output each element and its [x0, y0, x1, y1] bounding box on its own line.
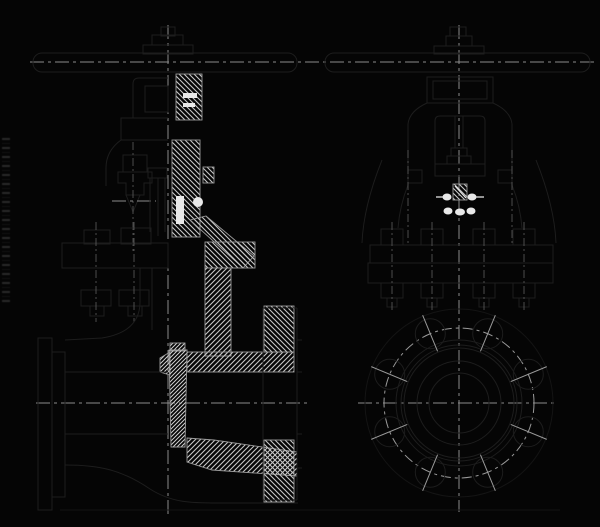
packing-highlight — [176, 196, 184, 224]
yoke-sleeve-inner — [145, 86, 168, 112]
gland-bolt-flange — [118, 172, 152, 195]
front-elevation-view — [325, 27, 590, 497]
gland-stud-highlight — [467, 208, 476, 215]
inlet-flange — [38, 338, 65, 510]
gland-pin-highlight — [193, 197, 203, 207]
gland-plate — [435, 164, 485, 176]
gland-bolt-head — [123, 155, 147, 172]
bonnet-flange-left-outline — [62, 243, 168, 268]
inlet-flange-face — [52, 352, 65, 497]
eyebolt-nut — [148, 168, 167, 178]
bolt-hole-tick — [371, 424, 407, 439]
gland-eyebolt-right — [498, 170, 512, 183]
gland-stud-highlight — [444, 208, 453, 215]
bolt-hole-tick — [423, 455, 438, 491]
gland-front — [408, 164, 512, 216]
drawing-canvas: Gate valve two-view engineering drawing — [0, 0, 600, 527]
yoke-and-gland-left — [106, 140, 167, 252]
yoke-window — [435, 116, 485, 168]
flange-stud-tails — [387, 298, 529, 307]
bolt-hole-tick — [511, 367, 547, 382]
yoke-sleeve-step — [121, 118, 168, 140]
edge-watermark-strip — [2, 138, 10, 303]
gland-nut-highlight — [443, 194, 452, 201]
yoke-sleeve — [121, 74, 202, 140]
body-flange-lower — [368, 263, 553, 283]
centerlines — [30, 25, 597, 515]
body-upper-wall-section — [187, 352, 294, 372]
inlet-flange-ring — [38, 338, 52, 510]
gland-nut-highlight — [468, 194, 477, 201]
gate-valve-drawing: Gate valve two-view engineering drawing — [0, 0, 600, 527]
yoke-shoulder-right — [493, 103, 512, 185]
bushing-thread-highlight — [183, 103, 195, 107]
bolt-hole-tick — [480, 315, 495, 351]
gland-stud-highlight — [455, 209, 465, 216]
bolt-hole-tick — [371, 367, 407, 382]
handwheel-front — [325, 27, 590, 72]
bushing-thread-highlight — [183, 93, 197, 98]
bonnet-bolt-head — [121, 228, 151, 244]
yoke-front — [408, 77, 512, 185]
gate-wedge-section — [169, 350, 187, 447]
bolt-hole-tick — [511, 424, 547, 439]
gate-wedge — [169, 343, 187, 447]
body-neck-section — [205, 268, 231, 356]
yoke-arm-left-outline — [106, 140, 121, 186]
gland-follower-section — [203, 167, 214, 183]
body-neck-left-outline — [65, 268, 140, 340]
body-flange-front — [368, 222, 553, 312]
bolt-hole-tick — [480, 455, 495, 491]
stem-cap — [450, 27, 466, 36]
yoke-head-inner — [433, 81, 487, 99]
eyebolt-stud — [150, 178, 165, 236]
bonnet-bolt-head — [84, 230, 110, 244]
outlet-flange-top-section — [264, 306, 294, 352]
outlet-flange-bottom-section — [264, 440, 294, 502]
bolt-hole-tick — [423, 315, 438, 351]
outlet-flange-face-ticks — [297, 340, 302, 468]
handwheel-side — [33, 27, 297, 72]
gland-eyebolt-left — [408, 170, 422, 183]
yoke-shoulder-left — [408, 103, 427, 185]
body-flange-upper — [370, 245, 553, 263]
bonnet-flange-section — [205, 242, 255, 268]
